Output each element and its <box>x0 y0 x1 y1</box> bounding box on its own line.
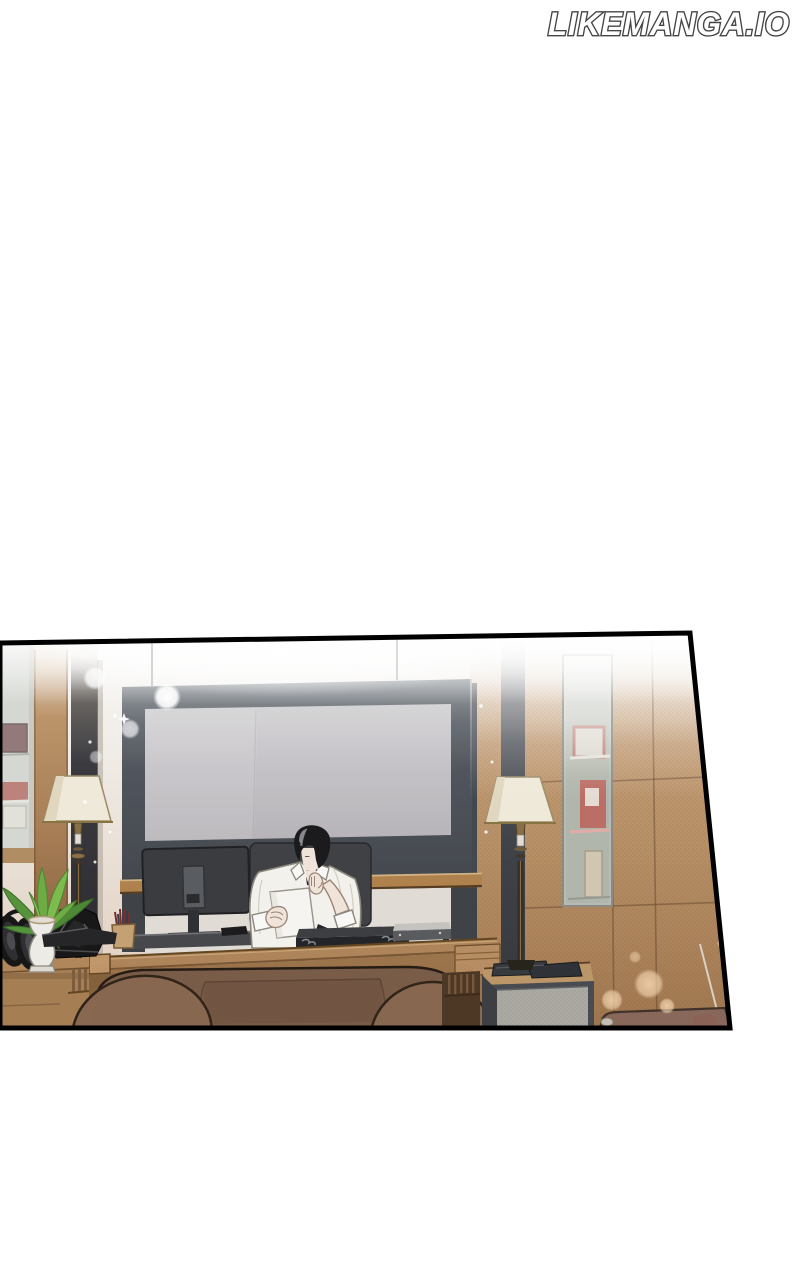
svg-text:LIKEMANGA.IO: LIKEMANGA.IO <box>548 6 790 42</box>
